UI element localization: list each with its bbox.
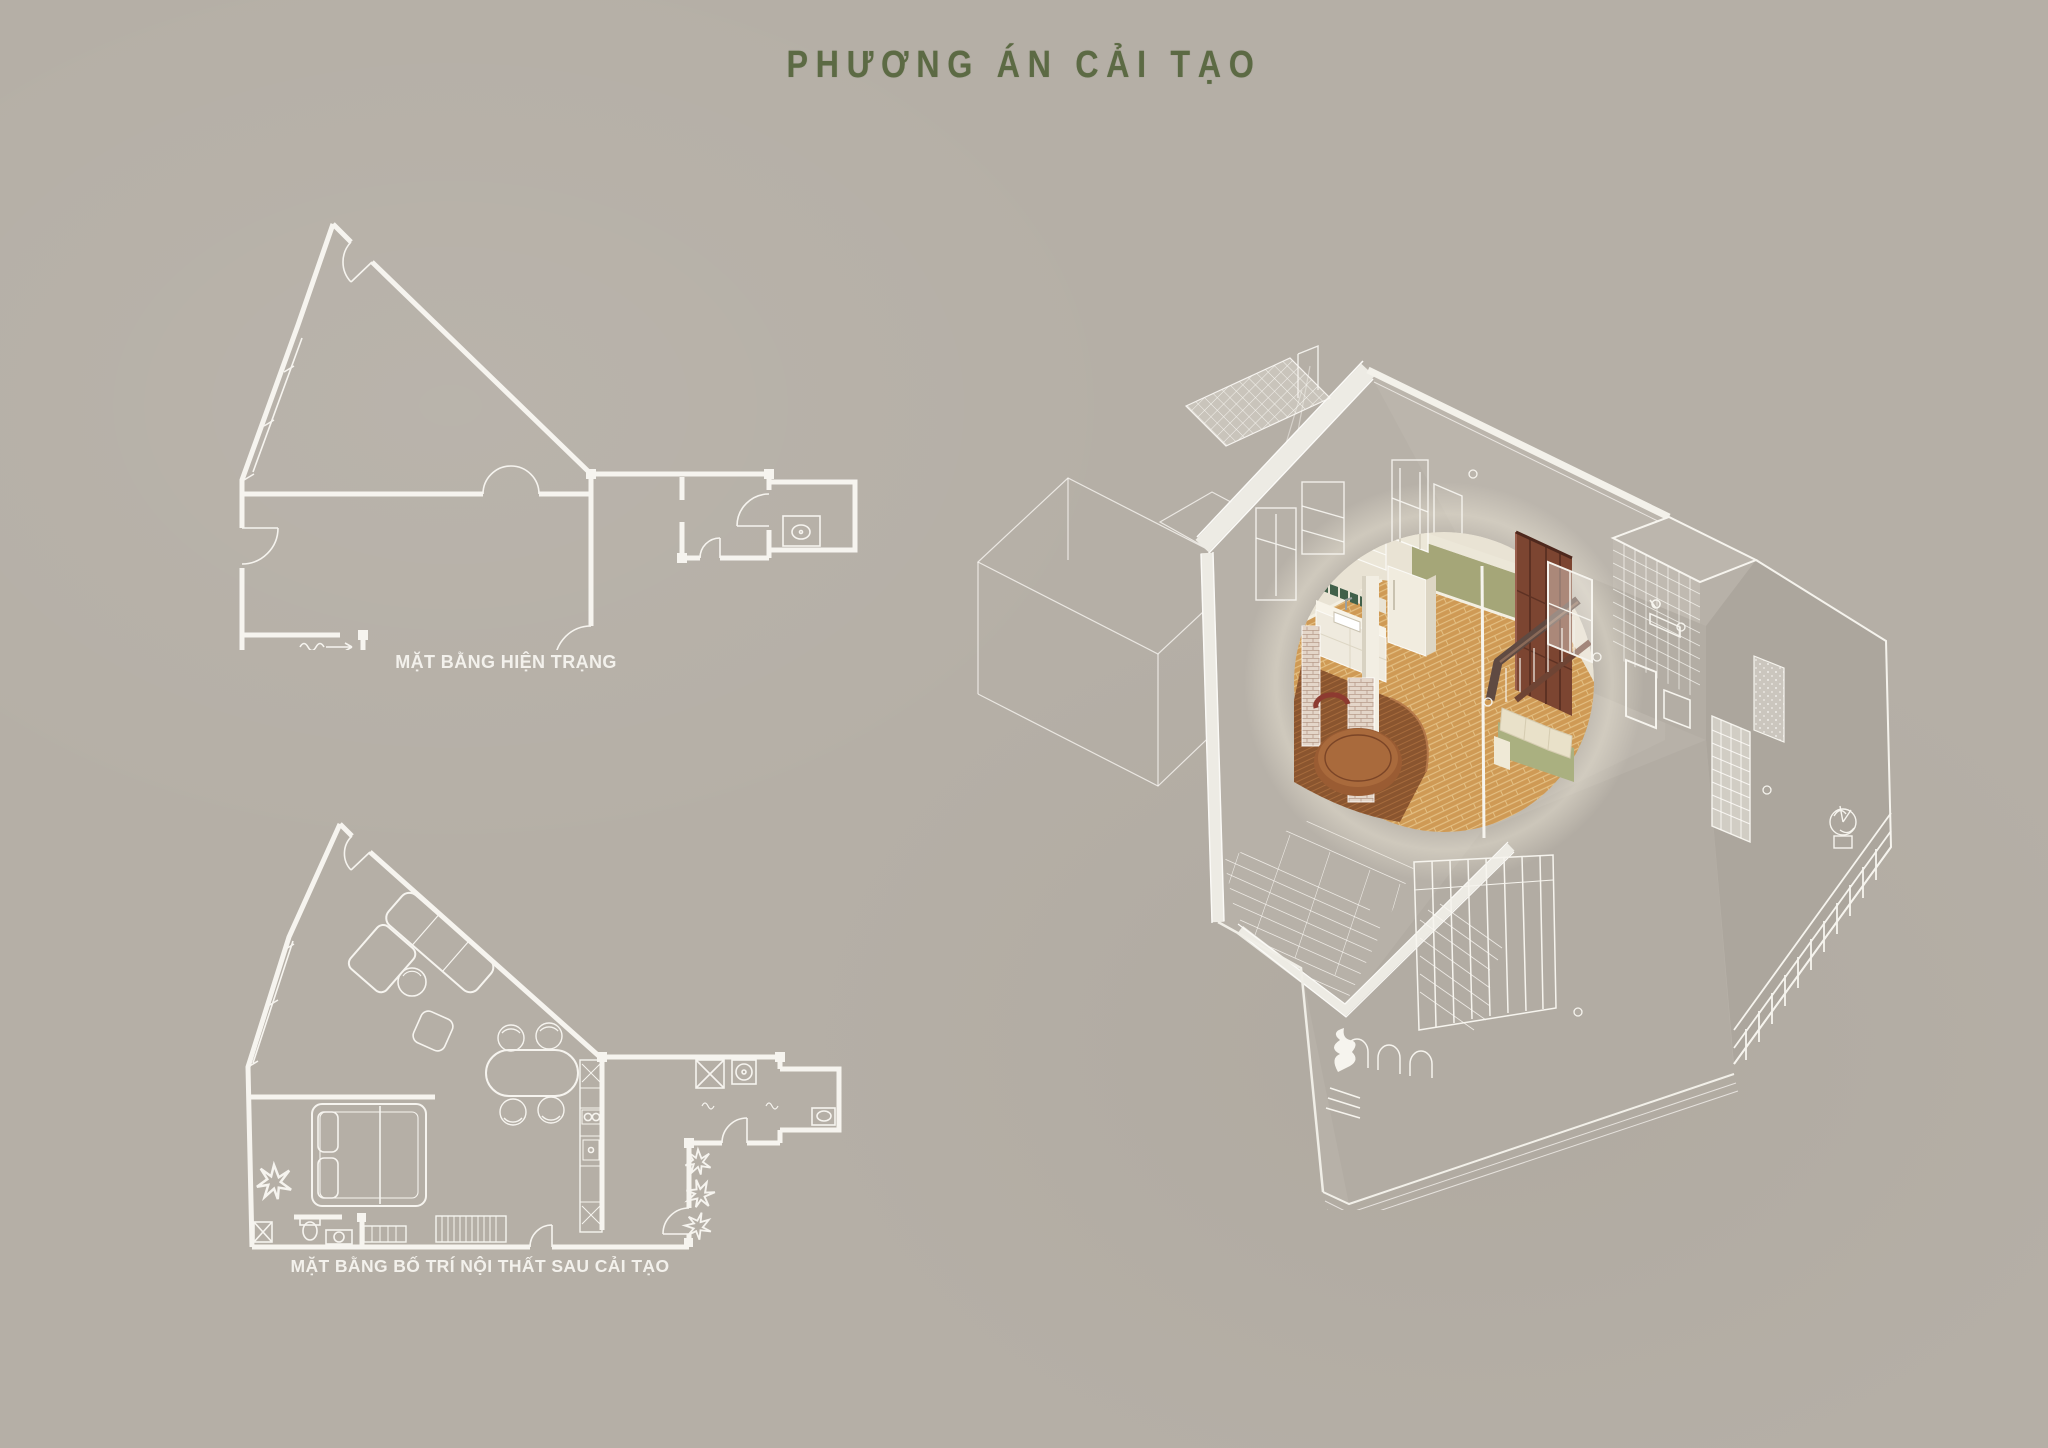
figure-existing-plan xyxy=(220,190,860,650)
axonometric-drawing xyxy=(950,270,1950,1210)
renovated-plan-columns xyxy=(357,1052,785,1247)
renovated-plan-drawing xyxy=(230,810,850,1250)
renovated-plan-label: MẶT BẰNG BỐ TRÍ NỘI THẤT SAU CẢI TẠO xyxy=(180,1256,780,1277)
renovated-plan-details xyxy=(248,836,835,1247)
renovated-plan-plants xyxy=(257,1149,719,1243)
page-title: PHƯƠNG ÁN CẢI TẠO xyxy=(154,44,1895,87)
existing-plan-drawing xyxy=(220,190,860,650)
renovated-plan-walls xyxy=(248,824,839,1247)
fridge xyxy=(1388,566,1426,656)
figure-axonometric xyxy=(950,270,1950,1210)
existing-plan-walls xyxy=(242,224,855,650)
existing-plan-details xyxy=(242,242,820,650)
figure-renovated-plan xyxy=(230,810,850,1250)
presentation-board: PHƯƠNG ÁN CẢI TẠO xyxy=(0,0,2048,1448)
existing-plan-label: MẶT BẰNG HIỆN TRẠNG xyxy=(306,652,706,673)
column-brick-left xyxy=(1302,626,1320,746)
